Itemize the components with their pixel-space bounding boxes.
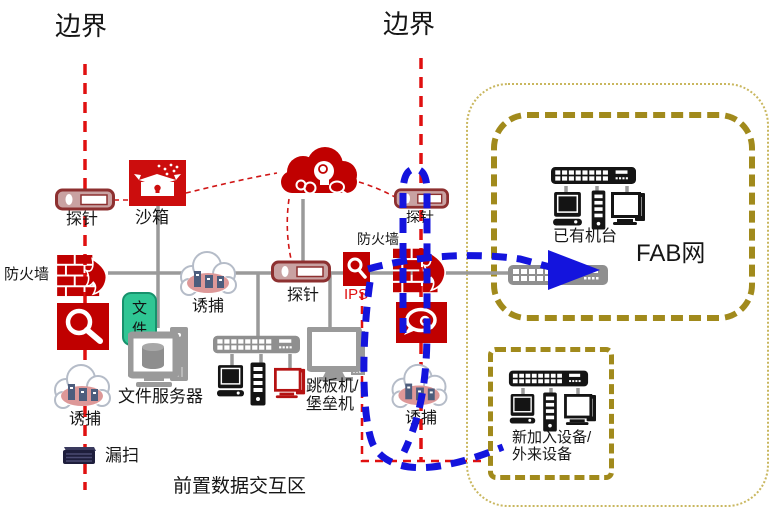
switch-icon: [551, 165, 636, 186]
network-security-diagram: 文件: [0, 0, 778, 515]
new-devices-label: 新加入设备/ 外来设备: [512, 429, 591, 464]
front-zone-label: 前置数据交互区: [173, 476, 306, 498]
scanner-icon: [57, 303, 109, 350]
file-server-icon: [128, 325, 196, 389]
jump-host-label-line1: 跳板机/: [306, 378, 358, 396]
threat-intel-cloud-icon: [275, 145, 363, 202]
firewall-right-label: 防火墙: [357, 231, 399, 247]
jump-host-icon: [307, 327, 367, 381]
firewall-icon: [57, 255, 112, 298]
probe-left-label: 探针: [66, 211, 98, 229]
probe-right-label: 探针: [406, 209, 434, 225]
boundary-right-label: 边界: [383, 10, 435, 40]
vuln-scan-server-icon: [60, 443, 98, 467]
switch-icon: [507, 369, 590, 388]
firewall-left-label: 防火墙: [4, 266, 49, 283]
desktop-icon: [217, 365, 244, 397]
monitor-icon: [564, 394, 597, 425]
sandbox-icon: [129, 160, 186, 206]
switch-icon: [497, 263, 619, 287]
boundary-left-label: 边界: [55, 12, 107, 42]
new-devices-label-line1: 新加入设备/: [512, 429, 591, 446]
desktop-icon: [552, 192, 583, 226]
fab-network-label: FAB网: [636, 240, 705, 268]
probe-icon: [394, 187, 449, 210]
file-server-label: 文件服务器: [118, 387, 203, 407]
existing-machines-label: 已有机台: [553, 228, 617, 246]
probe-icon: [271, 259, 331, 284]
decoy-cloud-icon: [51, 360, 114, 415]
server-tower-icon: [542, 392, 558, 432]
decoy-left-label: 诱捕: [69, 411, 101, 429]
decoy-cloud-icon: [387, 360, 452, 414]
decoy-top-label: 诱捕: [192, 298, 224, 316]
vuln-scan-label: 漏扫: [105, 446, 139, 466]
ips-icon: [343, 252, 370, 286]
monitor-icon: [274, 366, 306, 400]
new-devices-label-line2: 外来设备: [512, 446, 591, 463]
monitor-icon: [611, 192, 646, 225]
probe-mid-label: 探针: [287, 287, 319, 305]
switch-icon: [213, 334, 300, 355]
ips-label: IPS: [344, 286, 368, 303]
jump-host-label-line2: 堡垒机: [306, 396, 358, 414]
jump-host-label: 跳板机/ 堡垒机: [306, 378, 358, 415]
decoy-right-label: 诱捕: [405, 410, 437, 428]
desktop-icon: [509, 394, 536, 424]
probe-icon: [55, 188, 115, 211]
audit-icon: [396, 302, 447, 343]
sandbox-label: 沙箱: [135, 208, 169, 228]
decoy-cloud-icon: [177, 247, 240, 302]
firewall-icon: [393, 248, 451, 295]
server-tower-icon: [250, 362, 266, 406]
server-tower-icon: [589, 190, 608, 230]
